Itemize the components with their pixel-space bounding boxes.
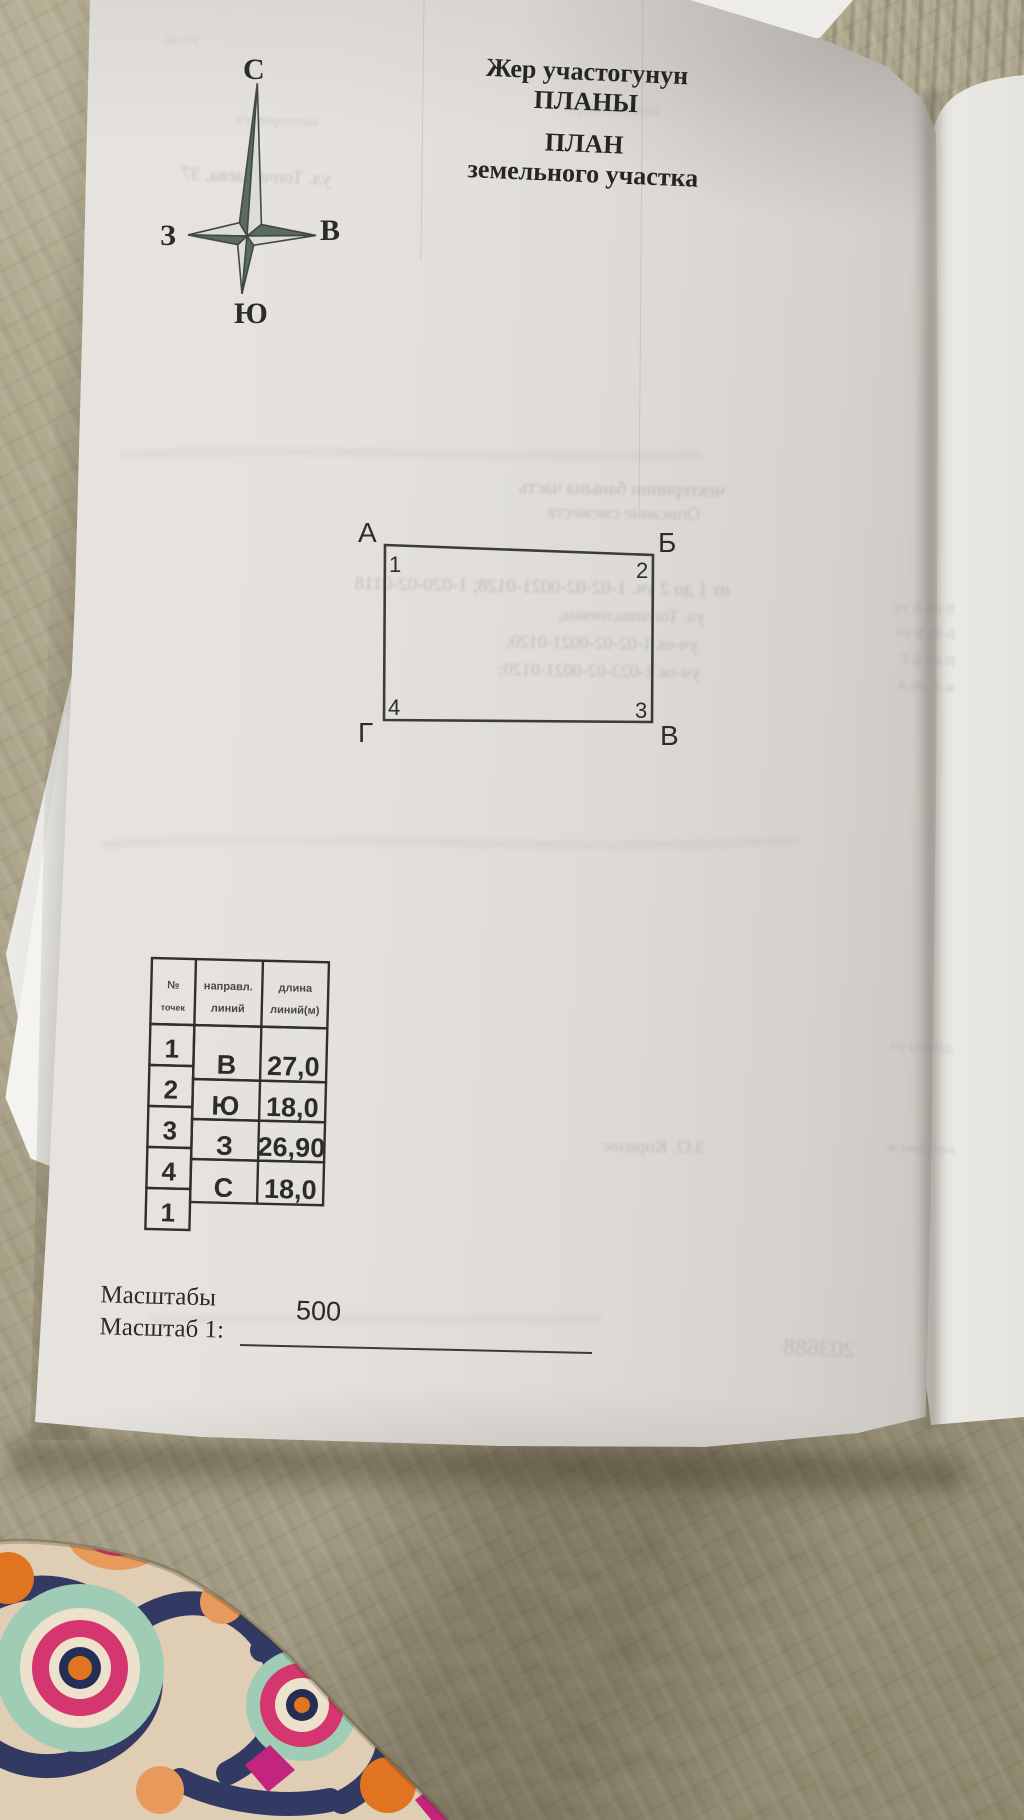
svg-text:4: 4 <box>388 695 400 720</box>
svg-text:1: 1 <box>160 1197 175 1227</box>
svg-text:направл.: направл. <box>204 980 253 993</box>
svg-text:В: В <box>216 1050 236 1080</box>
svg-text:Ю: Ю <box>211 1091 240 1122</box>
svg-text:З: З <box>216 1131 234 1161</box>
svg-text:В: В <box>660 720 679 751</box>
svg-text:2: 2 <box>163 1074 178 1104</box>
svg-text:3: 3 <box>162 1115 177 1145</box>
svg-text:C: C <box>243 53 265 86</box>
svg-text:18,0: 18,0 <box>264 1174 317 1205</box>
svg-text:27,0: 27,0 <box>267 1051 320 1082</box>
svg-text:В: В <box>320 214 340 247</box>
svg-text:4: 4 <box>161 1156 177 1186</box>
svg-text:1: 1 <box>389 552 401 577</box>
svg-text:26,90: 26,90 <box>257 1132 325 1164</box>
svg-text:точек: точек <box>161 1002 186 1013</box>
svg-text:3: 3 <box>635 698 647 723</box>
svg-text:С: С <box>213 1173 233 1203</box>
svg-text:З: З <box>160 219 176 252</box>
svg-text:линий(м): линий(м) <box>270 1004 320 1017</box>
svg-text:Б: Б <box>658 527 676 558</box>
svg-text:1: 1 <box>164 1033 179 1063</box>
svg-text:длина: длина <box>278 982 313 995</box>
svg-text:линий: линий <box>211 1002 245 1015</box>
svg-text:2: 2 <box>636 558 648 583</box>
svg-text:А: А <box>358 517 377 548</box>
svg-text:Г: Г <box>358 717 373 748</box>
svg-text:18,0: 18,0 <box>266 1092 319 1123</box>
svg-text:№: № <box>167 979 180 991</box>
svg-text:Ю: Ю <box>234 297 268 330</box>
